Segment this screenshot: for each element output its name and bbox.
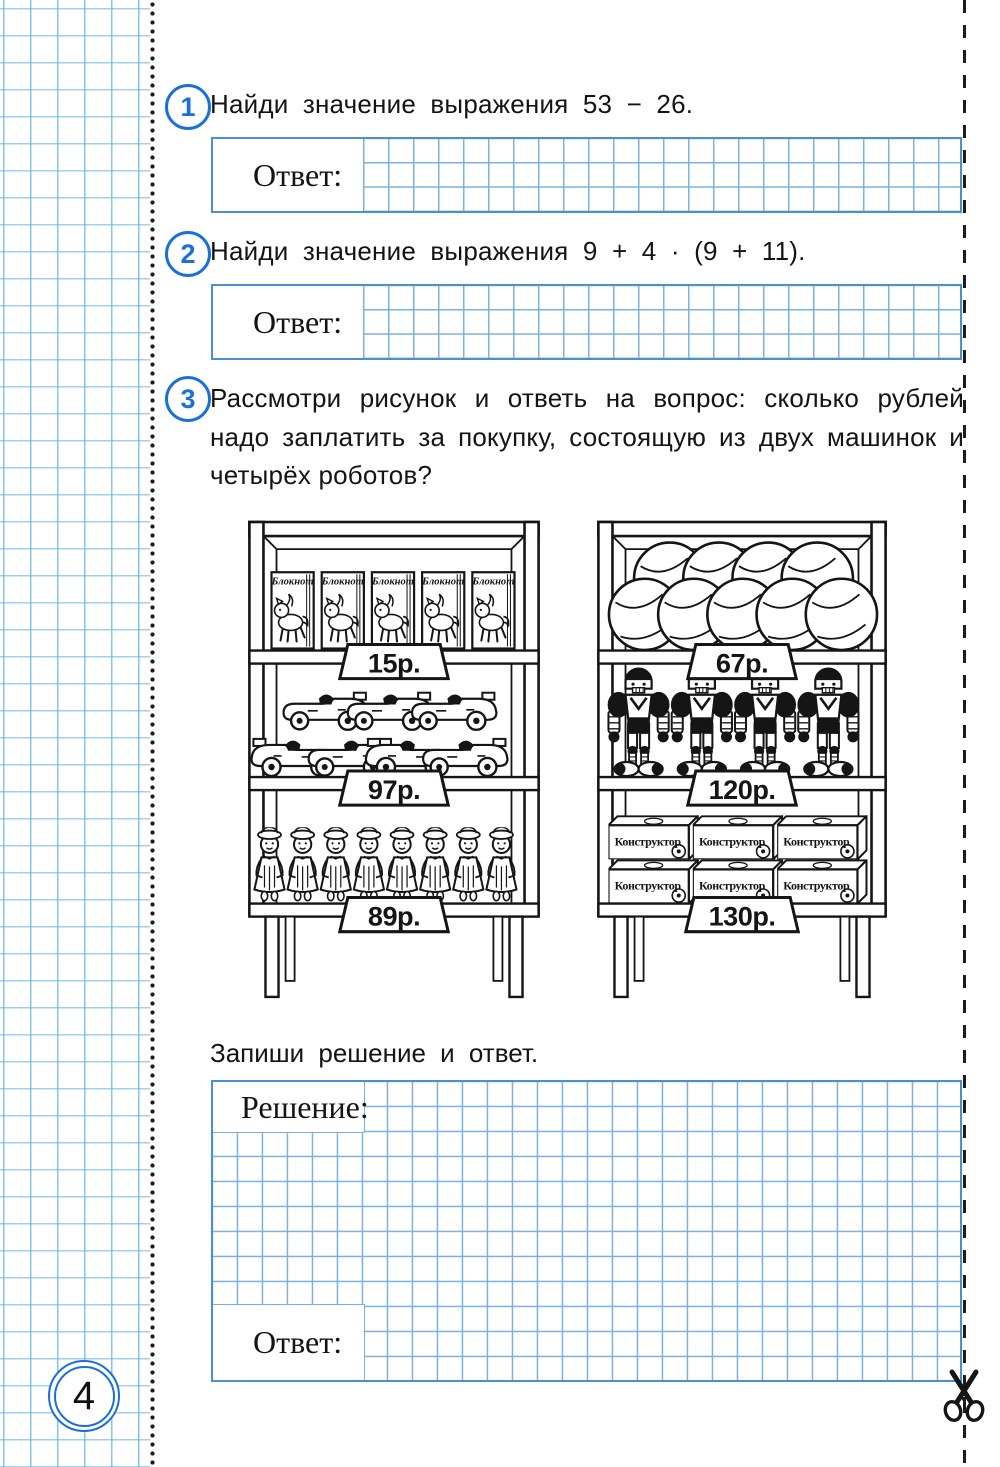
price-label: 97р. <box>368 774 420 805</box>
dolls-row <box>254 827 516 900</box>
task-1-answer-grid[interactable] <box>363 139 960 211</box>
task-1-number: 1 <box>180 92 195 123</box>
right-cut-line <box>963 0 966 1467</box>
price-label: 15р. <box>368 648 420 679</box>
constructor-boxes <box>608 816 866 903</box>
task-3-text-line3: четырёх роботов? <box>210 456 964 495</box>
notebooks-row <box>271 572 515 648</box>
price-tag: 67р. <box>688 645 796 679</box>
price-tag: 97р. <box>340 771 448 805</box>
left-dotted-separator <box>149 0 156 1467</box>
task-2-answer-grid[interactable] <box>363 286 960 358</box>
task-1-answer-box[interactable]: Ответ: <box>211 137 962 213</box>
task-3-text: Рассмотри рисунок и ответь на вопрос: ск… <box>210 379 964 495</box>
right-shelf-illustration: Конструктор <box>592 518 892 1010</box>
task-2-answer-box[interactable]: Ответ: <box>211 284 962 360</box>
price-label: 89р. <box>368 901 420 932</box>
left-shelf-illustration: Блокнот <box>243 518 545 1010</box>
workbook-page: 1 Найди значение выражения 53 − 26. Отве… <box>0 0 1000 1467</box>
task-2-number: 2 <box>180 239 195 270</box>
task-3-number-badge: 3 <box>165 376 211 422</box>
toy-cars-row <box>251 693 507 776</box>
left-margin-grid <box>0 0 150 1467</box>
task-3-answer-label: Ответ: <box>213 1304 365 1380</box>
balls-row <box>609 543 877 650</box>
task-3-number: 3 <box>180 384 195 415</box>
task-2-text: Найди значение выражения 9 + 4 · (9 + 11… <box>210 236 964 267</box>
task-1-answer-label: Ответ: <box>213 139 363 211</box>
scissors-icon <box>938 1368 990 1426</box>
task-2-number-badge: 2 <box>165 231 211 277</box>
price-label: 67р. <box>716 648 768 679</box>
page-number-badge: 4 <box>48 1360 120 1432</box>
task-3-instruction: Запиши решение и ответ. <box>210 1038 538 1069</box>
price-tag: 130р. <box>686 898 798 932</box>
solution-label: Решение: <box>213 1082 365 1133</box>
task-3-text-line2: надо заплатить за покупку, состоящую из … <box>210 418 964 457</box>
task-1-text: Найди значение выражения 53 − 26. <box>210 89 964 120</box>
price-label: 130р. <box>709 901 776 932</box>
price-tag: 120р. <box>688 771 796 805</box>
task-2-answer-label: Ответ: <box>213 286 363 358</box>
price-tag: 89р. <box>340 898 448 932</box>
solution-box[interactable]: Решение: Ответ: <box>211 1080 962 1382</box>
task-3-text-line1: Рассмотри рисунок и ответь на вопрос: ск… <box>210 379 964 418</box>
price-label: 120р. <box>709 774 776 805</box>
page-number: 4 <box>54 1366 115 1427</box>
price-tag: 15р. <box>340 645 448 679</box>
task-1-number-badge: 1 <box>165 84 211 130</box>
robots-row <box>608 669 858 776</box>
